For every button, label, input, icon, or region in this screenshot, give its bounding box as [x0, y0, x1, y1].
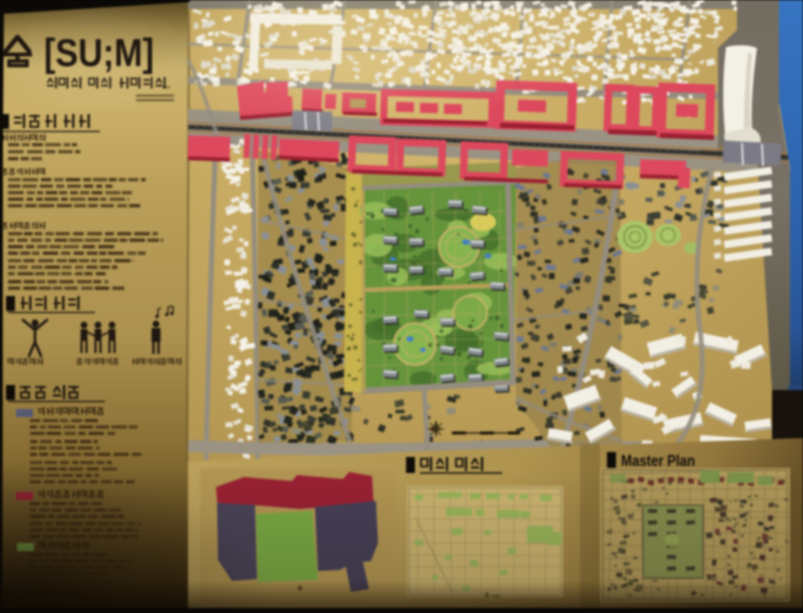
svg-text:[SU;M]: [SU;M]: [44, 32, 154, 75]
svg-text:Master Plan: Master Plan: [621, 453, 695, 470]
